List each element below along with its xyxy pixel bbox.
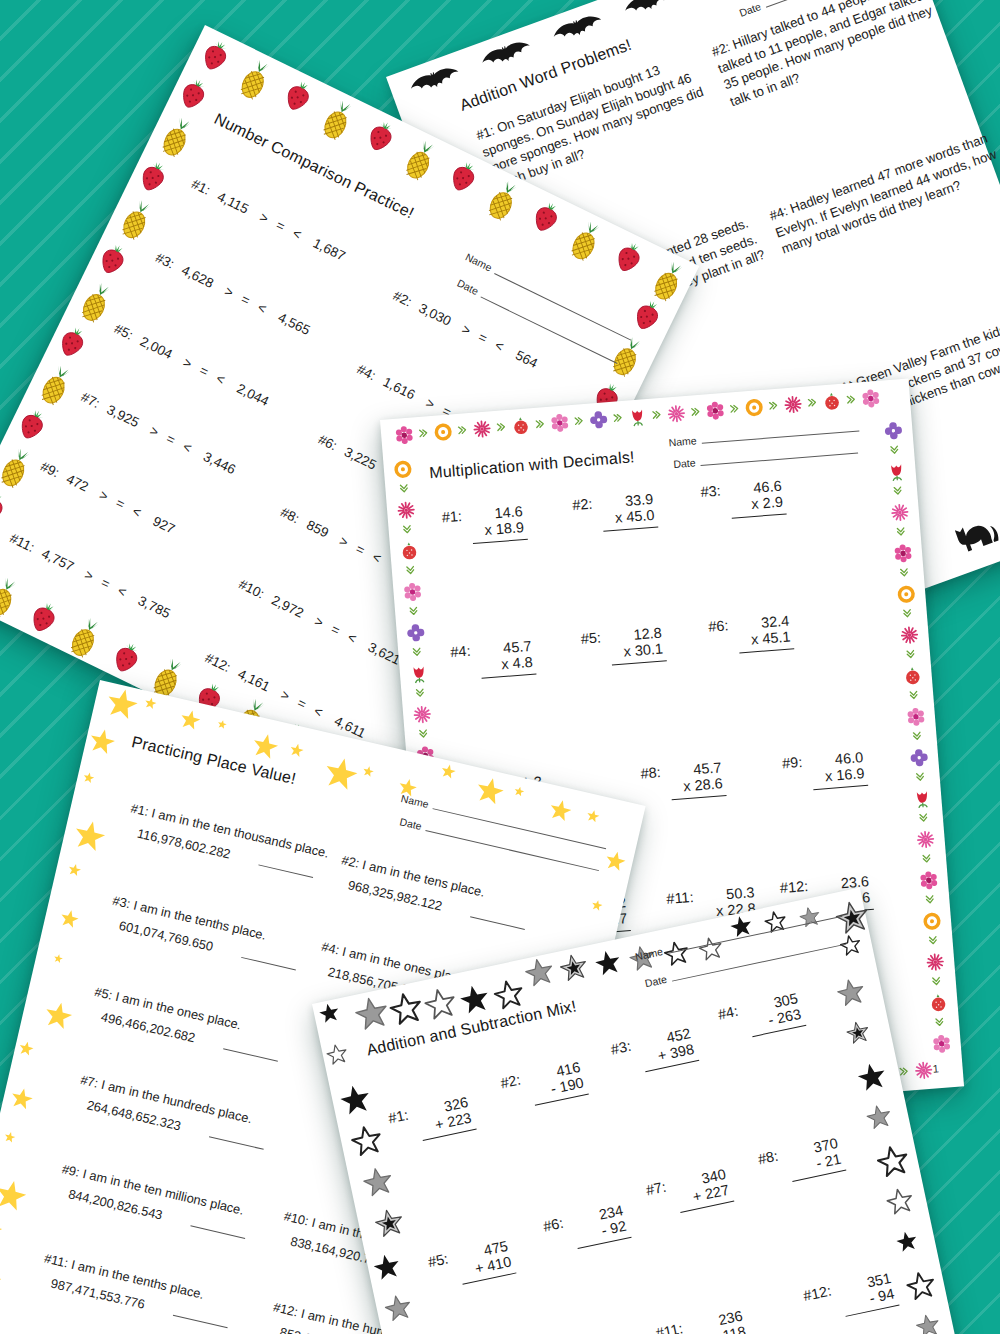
number-stack: 475+ 410 [455,1237,516,1285]
flower-daisy-icon [703,399,727,423]
worksheet-title: Multiplication with Decimals! [429,448,636,482]
place-value-problem: #2: I am in the tens place.968,325,982.1… [335,852,533,933]
problem-number: #7: [79,1072,100,1091]
number-stack: 45.7x 4.8 [479,638,537,679]
yellow-star-icon [0,1267,4,1293]
date-line [700,443,858,466]
pineapple-icon [313,94,362,147]
bottom-number: x 45.0 [608,507,655,527]
yellow-star-icon [102,684,143,725]
problem-number: #4: [355,362,378,384]
chevron-leaf-icon [456,423,470,437]
problem-number: #11: [8,530,37,555]
comparison-problem: #9:472> = <927 [38,459,186,542]
yellow-star-icon [52,953,64,965]
chevron-leaf-icon [407,604,421,618]
flower-daisy-icon [548,411,572,435]
flower-aster-icon [410,703,434,727]
number-stack: 326+ 223 [415,1093,476,1141]
comparison-problem: #7:3,925> = <3,446 [79,389,247,481]
answer-blank [258,854,315,878]
yellow-star-icon [585,808,602,825]
problem-number: #5: [112,321,135,343]
pineapple-icon [72,276,121,329]
problem-number: #2: [391,288,414,310]
problem-number: #6: [542,1215,565,1235]
number-stack: 32.4x 45.1 [737,612,795,653]
answer-blank [173,1304,230,1328]
date-label: Date [737,0,762,19]
problem-number: #12: [272,1299,300,1319]
left-number: 1,616 [381,374,418,402]
outline-star-icon [883,1185,916,1218]
yellow-star-icon [69,816,110,857]
gray-star-icon [522,955,558,991]
black-star-icon [456,981,494,1019]
gray-star-icon [913,1312,943,1334]
flower-daisy-icon [401,580,425,604]
comparison-problem: #1:4,115> = <1,687 [189,176,356,268]
tulip-icon [885,460,909,484]
problem-number: #1: [387,1107,410,1127]
bottom-number: x 30.1 [616,641,663,661]
yellow-star-icon [602,848,628,874]
flower-daisy-icon [930,1032,954,1056]
arithmetic-problem: #8:45.7x 28.6 [640,759,727,802]
berry-icon [398,539,422,563]
bottom-number: x 18.9 [478,519,525,539]
problem-number: #12: [203,650,233,675]
problem-number: #11: [666,889,694,907]
number-stack: 46.0x 16.9 [811,749,869,790]
place-value-problem: #5: I am in the ones place.496,466,202.6… [88,984,286,1065]
chevron-leaf-icon [572,414,586,428]
date-label: Date [644,973,668,989]
problem-number: #10: [283,1208,311,1228]
arithmetic-problem: #8:370- 21 [756,1134,846,1188]
word-problem: #4: Hadley learned 47 more words than Ev… [767,127,1000,258]
yellow-star-icon [66,862,83,879]
pineapple-icon [32,359,81,412]
number-stack: 452+ 398 [638,1024,699,1072]
number-stack: 416- 190 [528,1058,589,1106]
gray-star-icon [372,1206,408,1242]
problem-number: #11: [654,1320,684,1334]
gray-star-icon [557,951,591,985]
date-label: Date [673,456,696,470]
arithmetic-problem: #4:305- 263 [716,989,806,1043]
black-star-icon [336,1081,375,1120]
bottom-number: x 16.9 [818,765,865,785]
problem-number: #5: [93,984,114,1003]
number-stack: 14.6x 18.9 [470,503,528,544]
black-star-icon [591,947,624,980]
tulip-icon [911,787,935,811]
outline-star-icon [903,1269,939,1305]
chevron-leaf-icon [907,688,921,702]
problem-number: #9: [38,459,61,481]
comparison-symbols: > = < [222,284,270,317]
arithmetic-problem: #4:45.7x 4.8 [450,638,537,681]
flower-daisy-icon [891,542,915,566]
name-line [701,420,859,443]
black-star-icon [370,1250,404,1284]
page-number: 1 [932,1062,939,1074]
problem-number: #8: [278,505,301,527]
yellow-star-icon [248,730,282,764]
problem-number: #2: [340,852,361,871]
clover-icon [404,621,428,645]
chevron-leaf-icon [926,934,940,948]
bat-icon [615,0,679,25]
yellow-star-icon [17,1039,36,1058]
problem-number: #4: [716,1003,739,1023]
pineapple-icon [396,134,445,187]
chevron-leaf-icon [891,484,905,498]
chevron-leaf-icon [805,396,819,410]
comparison-problem: #2:3,030> = <564 [391,288,549,375]
chevron-leaf-icon [728,402,742,416]
black-star-icon [316,1001,342,1027]
problem-number: #3: [153,250,176,272]
pineapple-icon [0,571,27,624]
berry-icon [927,991,951,1015]
arithmetic-problem: #6:32.4x 45.1 [708,612,795,655]
problem-number: #6: [316,432,339,454]
problem-number: #3: [609,1038,632,1058]
comparison-problem: #10:2,972> = <3,621 [237,577,412,673]
name-label: Name [668,434,697,448]
problem-number: #9: [782,754,803,772]
right-number: 1,687 [311,236,348,264]
name-label: Name [400,792,430,810]
chevron-leaf-icon [933,1015,947,1029]
chevron-leaf-icon [494,420,508,434]
problem-number: #4: [320,939,341,958]
comparison-problem: #5:2,004> = <2,044 [112,321,280,413]
tulip-icon [626,405,650,429]
yellow-star-icon [439,762,458,781]
yellow-star-icon [319,753,362,796]
answer-blank [470,906,527,930]
place-value-problem: #9: I am in the ten millions place.844,2… [55,1161,253,1242]
left-number: 2,972 [269,592,306,620]
arithmetic-problem: #1:14.6x 18.9 [441,503,528,546]
pineapple-icon [231,53,280,106]
chevron-leaf-icon [416,727,430,741]
comparison-problem: #3:4,628> = <4,565 [153,250,321,342]
problem-number: #9: [60,1161,81,1180]
chevron-leaf-icon [900,607,914,621]
arithmetic-problem: #11:236+ 118 [654,1307,751,1334]
arithmetic-problem: #6:234- 92 [542,1201,632,1255]
flower-daisy-icon [859,387,883,411]
tulip-icon [407,662,431,686]
problem-number: #8: [640,764,661,782]
yellow-star-icon [81,771,95,785]
comparison-symbols: > = < [459,321,507,354]
flower-aster-icon [914,828,938,852]
berry-icon [901,664,925,688]
problem-number: #2: [572,496,593,514]
right-number: 3,785 [136,593,173,621]
problem-number: #12: [779,878,808,896]
chevron-leaf-icon [533,417,547,431]
problem-number: #11: [43,1251,70,1271]
arithmetic-problem: #5:475+ 410 [427,1237,517,1291]
yellow-star-icon [177,707,203,733]
number-stack: 305- 263 [745,989,806,1037]
number-stack: 46.6x 2.9 [729,477,787,518]
yellow-star-icon [57,907,81,931]
flower-aster-icon [781,393,805,417]
number-stack: 236+ 118 [690,1307,751,1334]
right-number: 4,565 [276,310,313,338]
outline-star-icon [874,1143,913,1182]
chevron-leaf-icon [904,648,918,662]
left-number: 4,628 [179,263,216,291]
flower-aster-icon [888,501,912,525]
flower-aster-icon [470,417,494,441]
chevron-leaf-icon [910,729,924,743]
number-stack: 234- 92 [570,1201,631,1249]
number-stack: 12.8x 30.1 [609,624,667,665]
chevron-leaf-icon [650,408,664,422]
gray-star-icon [834,976,868,1010]
yellow-star-icon [0,1176,31,1217]
arithmetic-problem: #9:46.0x 16.9 [782,749,869,792]
answer-blank [190,1215,247,1239]
arithmetic-problem: #7:340+ 227 [644,1165,734,1219]
chevron-leaf-icon [767,399,781,413]
chevron-leaf-icon [916,811,930,825]
chevron-leaf-icon [410,645,424,659]
right-number: 3,446 [201,449,238,477]
chevron-leaf-icon [894,525,908,539]
arithmetic-problem: #5:12.8x 30.1 [580,624,667,667]
clover-icon [882,419,906,443]
problem-number: #1: [441,508,462,526]
problem-number: #4: [767,203,789,223]
left-number: 3,225 [342,444,379,472]
desk-scene: Addition Word Problems! Name Date #1: On… [0,0,1000,1334]
chevron-leaf-icon [887,443,901,457]
comparison-symbols: > = < [97,487,145,520]
pineapple-icon [479,174,528,227]
chevron-leaf-icon [413,686,427,700]
gray-star-icon [382,1292,415,1325]
clover-icon [587,408,611,432]
black-star-icon [893,1228,920,1255]
number-stack: 370- 21 [785,1134,846,1182]
bottom-number: x 2.9 [736,494,783,514]
problem-number: #10: [237,577,267,602]
pineapple-icon [561,215,610,268]
comparison-symbols: > = < [181,355,229,388]
black-cat-icon [949,508,1000,558]
flower-aster-icon [898,623,922,647]
pineapple-icon [153,111,202,164]
answer-blank [223,1037,280,1061]
flower-ring-icon [894,582,918,606]
problem-number: #7: [79,389,102,411]
flower-aster-icon [394,498,418,522]
outline-star-icon [386,989,426,1029]
comparison-symbols: > = < [257,209,305,242]
chevron-leaf-icon [844,392,858,406]
arithmetic-problem: #2:33.9x 45.0 [572,491,659,534]
bottom-number: x 4.8 [486,654,533,674]
yellow-star-icon [0,1221,4,1238]
flower-ring-icon [920,909,944,933]
problem-number: #2: [499,1071,522,1091]
comparison-symbols: > = < [147,423,195,456]
chevron-leaf-icon [400,523,414,537]
pineapple-icon [112,193,161,246]
number-stack: 351- 94 [838,1269,899,1317]
problem-number: #3: [111,893,132,912]
problem-number: #4: [450,643,471,661]
left-number: 472 [64,471,91,494]
flower-daisy-icon [917,869,941,893]
yellow-star-icon [143,696,159,712]
yellow-star-icon [85,725,119,759]
yellow-star-icon [40,998,76,1034]
flower-aster-icon [665,402,689,426]
bottom-number: x 45.1 [744,628,791,648]
chevron-leaf-icon [923,893,937,907]
gray-star-icon [360,1164,397,1201]
flower-ring-icon [431,420,455,444]
right-number: 2,044 [234,381,271,409]
clover-icon [907,746,931,770]
arithmetic-problem: #2:416- 190 [499,1058,589,1112]
comparison-symbols: > = < [337,533,385,566]
left-number: 859 [304,517,331,540]
chevron-leaf-icon [417,426,431,440]
yellow-star-icon [216,719,228,731]
right-number: 927 [150,513,177,536]
name-label: Name [464,250,494,273]
black-star-icon [854,1059,891,1096]
problem-number: #6: [708,617,729,635]
place-value-problem: #3: I am in the tenths place.601,074,769… [106,893,304,974]
bottom-number: x 28.6 [676,775,723,795]
yellow-star-icon [288,742,306,760]
arithmetic-problem: #3:452+ 398 [609,1024,699,1078]
problem-number: #12: [802,1283,833,1305]
comparison-symbols: > = < [312,613,360,646]
chevron-leaf-icon [913,770,927,784]
yellow-star-icon [513,785,526,798]
left-number: 4,757 [39,546,76,574]
chevron-leaf-icon [929,975,943,989]
flower-daisy-icon [904,705,928,729]
number-stack: 340+ 227 [673,1165,734,1213]
problem-number: #8: [756,1148,779,1168]
place-value-problem: #1: I am in the ten thousands place.116,… [124,800,330,883]
problem-number: #1: [474,123,496,143]
problem-number: #7: [644,1179,667,1199]
chevron-leaf-icon [689,405,703,419]
chevron-leaf-icon [920,852,934,866]
gray-star-icon [844,1019,872,1047]
right-number: 564 [513,348,540,371]
problem-number: #5: [580,629,601,647]
problem-number: #5: [427,1250,450,1270]
yellow-star-icon [361,764,375,778]
number-stack: 33.9x 45.0 [601,491,659,532]
chevron-leaf-icon [403,564,417,578]
problem-number: #1: [129,800,150,819]
outline-star-icon [348,1123,386,1161]
date-label: Date [455,277,480,298]
left-number: 4,161 [235,666,272,694]
outline-star-icon [324,1042,350,1068]
comparison-symbols: > = < [82,567,130,600]
problem-number: #1: [189,176,212,198]
yellow-star-icon [590,898,604,912]
left-number: 3,030 [417,300,454,328]
chevron-leaf-icon [611,411,625,425]
flower-ring-icon [391,458,415,482]
problem-number: #2: [710,39,732,59]
place-value-problem: #11: I am in the tenths place.987,471,55… [38,1251,236,1332]
yellow-star-icon [546,797,575,826]
number-stack: 45.7x 28.6 [669,759,727,800]
yellow-star-icon [472,774,508,810]
place-value-problem: #7: I am in the hundreds place.264,648,6… [74,1072,272,1153]
answer-blank [241,946,298,970]
gray-star-icon [864,1102,895,1133]
arithmetic-problem: #1:326+ 223 [387,1093,477,1147]
date-label: Date [399,815,423,832]
flower-aster-icon [923,950,947,974]
arithmetic-problem: #12:351- 94 [802,1269,900,1324]
left-number: 2,004 [138,334,175,362]
berry-icon [509,414,533,438]
yellow-star-icon [3,1130,17,1144]
problem-number: #3: [700,483,721,501]
answer-blank [209,1126,266,1150]
flower-ring-icon [742,396,766,420]
yellow-star-icon [7,1085,36,1114]
berry-icon [820,390,844,414]
word-problem: #1: On Saturday Elijah bought 13 sponges… [474,47,722,195]
outline-star-icon [421,985,460,1024]
chevron-leaf-icon [897,566,911,580]
date-field: Date [673,443,859,470]
chevron-leaf-icon [397,482,411,496]
left-number: 4,115 [215,189,251,217]
arithmetic-problem: #3:46.6x 2.9 [700,477,787,520]
left-number: 3,925 [104,402,141,430]
flower-daisy-icon [392,423,416,447]
